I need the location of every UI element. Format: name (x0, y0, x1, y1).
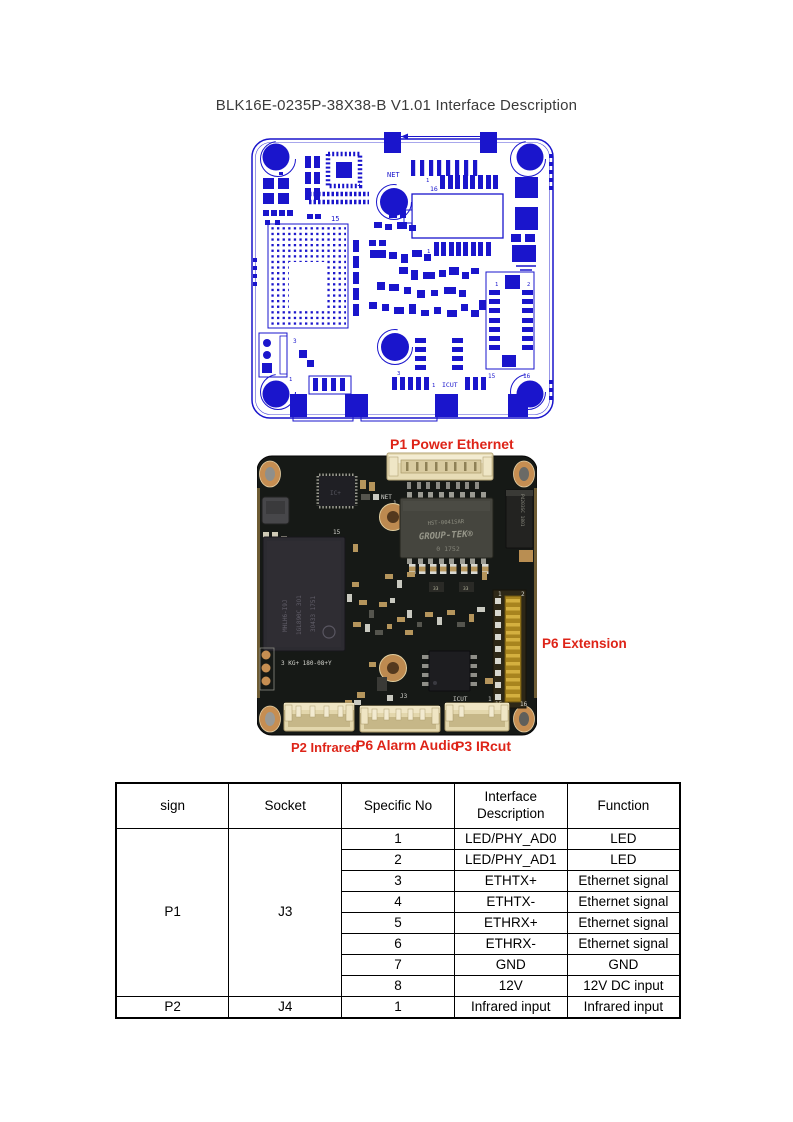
net-connector-footprint: NET 1 16 (387, 160, 498, 193)
j3-silkscreen: J3 (400, 693, 408, 700)
svg-text:2: 2 (527, 282, 530, 288)
pcb-silkscreen-diagram: NET 1 16 1 (249, 132, 557, 424)
kg-silkscreen: 3 KG+ 180-08+Y (281, 660, 332, 667)
photo-icut-silkscreen: ICUT (453, 696, 468, 703)
svg-text:33: 33 (433, 586, 439, 592)
flex-connector: 1 2 15 16 (493, 590, 528, 708)
col-header-socket: Socket (229, 783, 342, 829)
svg-text:1: 1 (495, 282, 498, 288)
socket-cell: J3 (229, 829, 342, 997)
sign-cell: P2 (116, 997, 229, 1019)
sign-cell: P1 (116, 829, 229, 997)
col-header-sign: sign (116, 783, 229, 829)
transformer-line3: 0 1752 (436, 545, 460, 553)
photo-net-silkscreen: NET (381, 494, 392, 501)
svg-text:15: 15 (333, 529, 341, 536)
main-chip-line1: MHLH6-I9J (282, 599, 289, 632)
interface-table: sign Socket Specific No Interface Descri… (115, 782, 681, 1019)
svg-text:16: 16 (523, 373, 531, 380)
table-row: P1 J3 1 LED/PHY_AD0 LED (116, 829, 680, 850)
soic8-chip (422, 651, 477, 691)
svg-text:1: 1 (498, 591, 502, 598)
svg-text:33: 33 (463, 586, 469, 592)
icut-silkscreen: ICUT (442, 381, 458, 389)
mic-component (262, 497, 289, 524)
table-row: P2 J4 1 Infrared input Infrared input (116, 997, 680, 1019)
transformer-pins: 1 (427, 242, 491, 256)
bottom-left-footprint: 3 1 (259, 333, 314, 383)
soic8-footprint (415, 338, 463, 370)
label-p1-power-ethernet: P1 Power Ethernet (390, 436, 514, 452)
p2-connector (284, 703, 354, 731)
svg-text:1: 1 (488, 696, 492, 703)
label-p6-extension: P6 Extension (542, 636, 627, 651)
p6-connector (360, 706, 440, 732)
transformer-footprint (404, 194, 503, 238)
pcb-photo: NET 1 16 IC+ (257, 452, 537, 738)
socket-cell: J4 (229, 997, 342, 1019)
page-title: BLK16E-0235P-38X38-B V1.01 Interface Des… (0, 97, 793, 114)
label-p3-ircut: P3 IRcut (455, 738, 511, 754)
svg-text:15: 15 (331, 215, 339, 223)
svg-text:3: 3 (397, 371, 400, 377)
label-p2-infrared: P2 Infrared (291, 740, 359, 755)
qfp-marking: IC+ (330, 490, 341, 497)
col-header-specific-no: Specific No (342, 783, 455, 829)
ethernet-transformer: HST-0041SAR GROUP-TEK® 0 1752 (400, 492, 493, 564)
main-chip-line3: 3O433 1751 (310, 595, 317, 632)
main-chip-line2: 1GL890C 3O1 (296, 595, 303, 635)
ladder-pads (305, 156, 320, 200)
document-page: BLK16E-0235P-38X38-B V1.01 Interface Des… (0, 0, 793, 1122)
qfp-chip: IC+ (318, 475, 356, 507)
svg-text:1: 1 (426, 178, 429, 184)
p3-connector (445, 703, 509, 731)
net-silkscreen: NET (387, 171, 400, 179)
label-p6-alarm-audio: P6 Alarm Audio (356, 737, 459, 753)
bga-footprint: 15 (268, 215, 348, 328)
svg-text:16: 16 (430, 185, 438, 193)
side-chip-marking: P4203SC 1801 (519, 494, 525, 527)
svg-text:1: 1 (432, 383, 435, 389)
svg-text:3: 3 (293, 338, 297, 345)
svg-text:1: 1 (289, 377, 292, 383)
svg-text:2: 2 (521, 591, 525, 598)
left-components (263, 172, 321, 225)
extension-footprint: 1 2 15 16 (486, 272, 534, 380)
main-chip: 15 MHLH6-I9J 1GL890C 3O1 3O433 1751 (263, 529, 345, 651)
svg-text:16: 16 (520, 701, 528, 708)
table-header-row: sign Socket Specific No Interface Descri… (116, 783, 680, 829)
svg-text:15: 15 (488, 373, 496, 380)
col-header-function: Function (567, 783, 680, 829)
col-header-interface-description: Interface Description (454, 783, 567, 829)
right-edge-components (511, 177, 538, 270)
